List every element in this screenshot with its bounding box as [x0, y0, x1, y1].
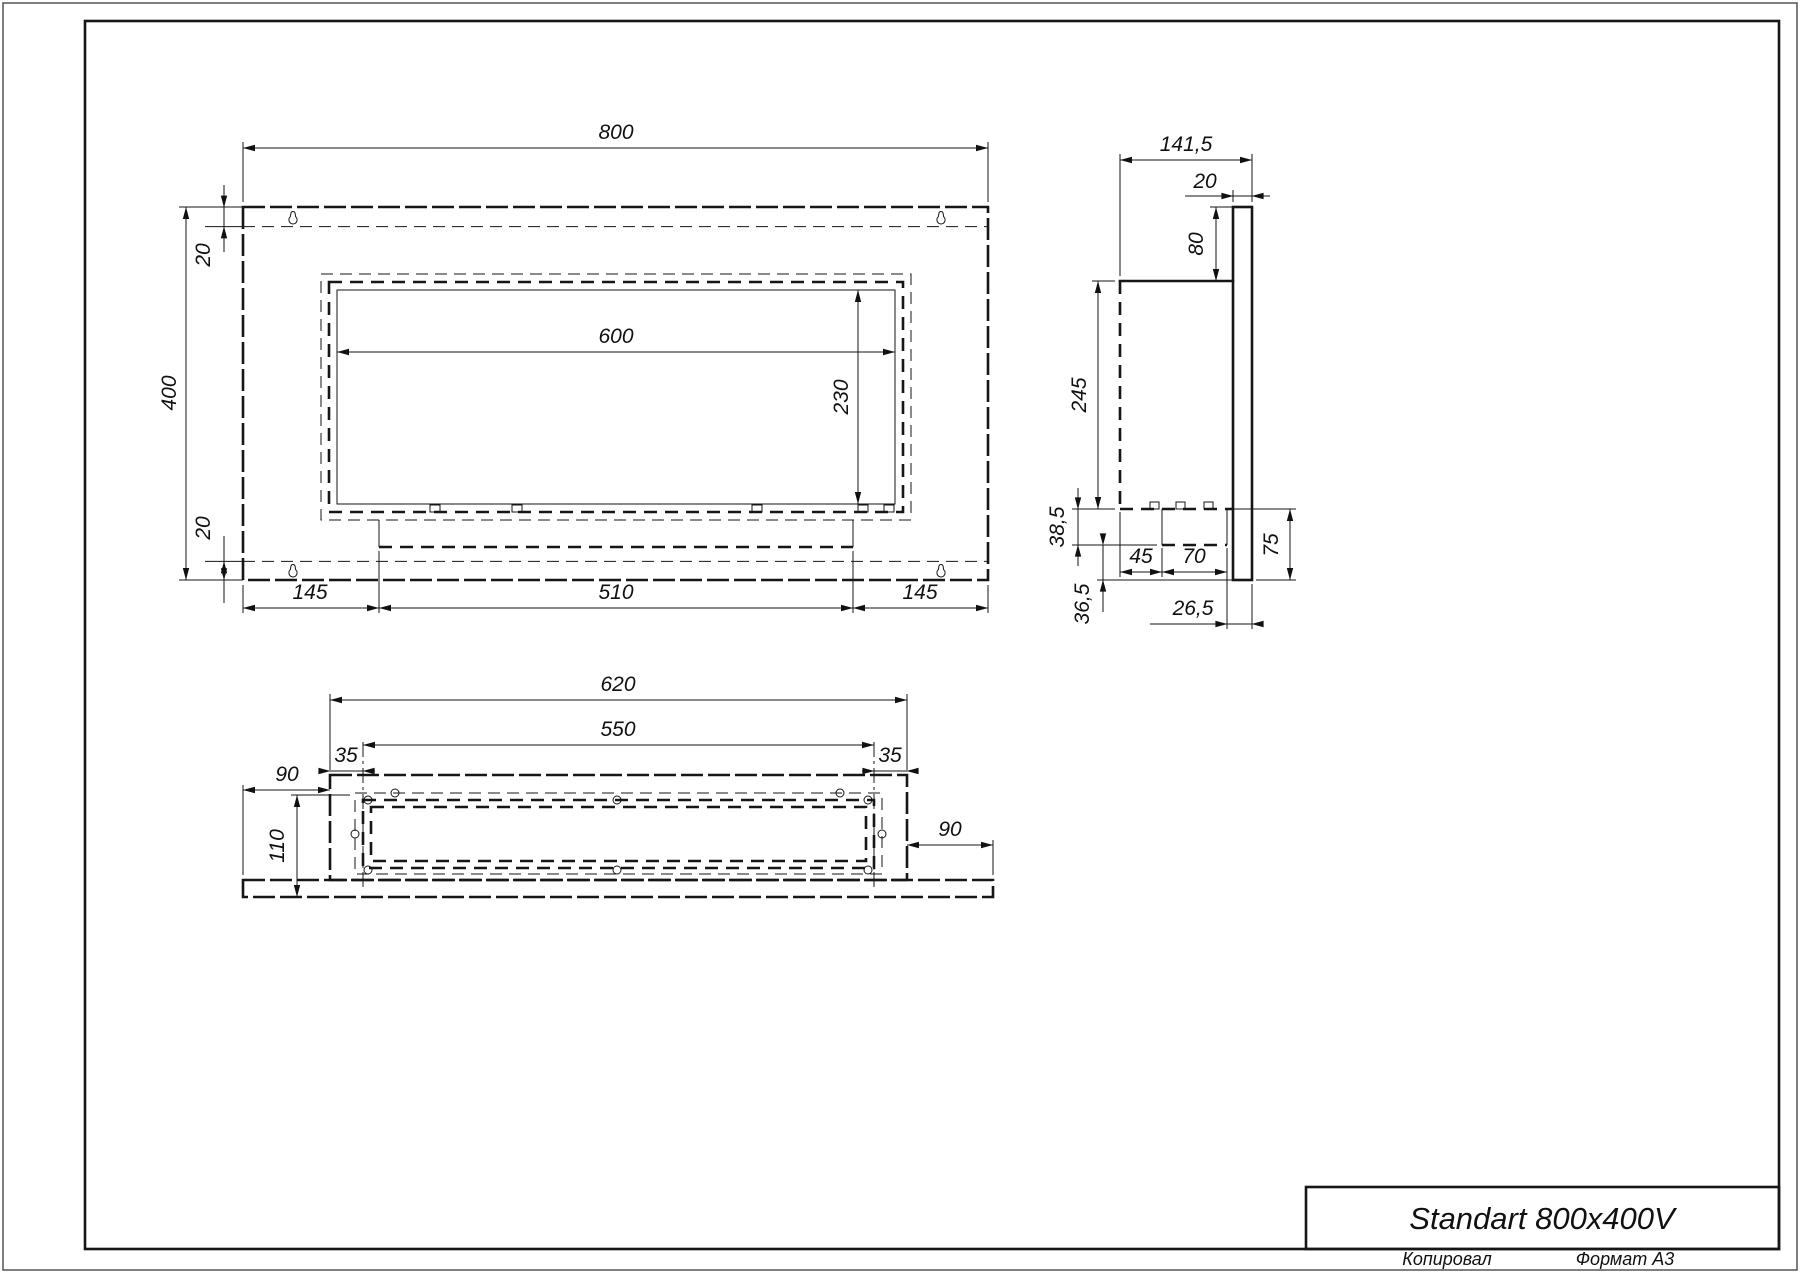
fuel-tray-front: [379, 520, 853, 547]
wall-panel-bottom: [243, 880, 993, 897]
opening: [337, 290, 895, 504]
technical-drawing: 800 400 20 20 600 230 145 510 145: [0, 0, 1800, 1273]
dim-bottom-right: 145: [902, 581, 937, 604]
dim-overall-width: 800: [598, 121, 633, 144]
dim-below-tray: 36,5: [1071, 583, 1094, 624]
dim-body-height: 245: [1068, 377, 1091, 413]
front-dimensions: 800 400 20 20 600 230 145 510 145: [158, 121, 988, 613]
dim-overall-depth: 141,5: [1160, 133, 1213, 156]
format-label: Формат А3: [1576, 1249, 1675, 1269]
extension-lines: [179, 142, 988, 613]
dim-tray-setback: 45: [1129, 545, 1153, 568]
dim-bottom-left: 145: [292, 581, 327, 604]
dim-tray-depth: 38,5: [1046, 506, 1069, 547]
title-block: Standart 800x400V Копировал Формат А3: [1306, 1187, 1779, 1269]
tray-wall-hidden: [363, 800, 874, 868]
dim-right-overhang: 90: [938, 818, 962, 841]
dim-hole-span: 550: [600, 718, 635, 741]
dim-top-offset: 80: [1185, 232, 1208, 256]
dim-depth: 110: [266, 829, 289, 863]
paper-edge: [3, 3, 1797, 1270]
back-panel: [1233, 207, 1252, 580]
opening-hidden-edge: [329, 282, 903, 512]
fuel-tray-side: [1162, 509, 1227, 545]
latch-tabs-side: [1150, 502, 1213, 509]
dim-panel-below-body: 75: [1260, 533, 1283, 557]
front-view: 800 400 20 20 600 230 145 510 145: [158, 121, 988, 613]
dim-left-inset: 35: [334, 744, 358, 767]
dim-tray-to-back: 26,5: [1172, 597, 1214, 620]
dim-overall-height: 400: [158, 375, 181, 410]
tray-inner-hidden: [371, 807, 866, 861]
dim-bottom-flange: 20: [192, 516, 215, 541]
dim-right-inset: 35: [878, 744, 902, 767]
dim-opening-height: 230: [830, 379, 853, 415]
dim-body-width: 620: [600, 673, 635, 696]
drawing-title: Standart 800x400V: [1409, 1201, 1678, 1236]
bottom-view: 620 550 35 35 90 90 110: [243, 673, 993, 897]
front-outline: [243, 207, 988, 580]
opening-outer-dashed: [321, 274, 911, 520]
side-view: 141,5 20 80 245 38,5 36,5 45 70 75 26,5: [1046, 133, 1296, 629]
dim-top-flange: 20: [192, 243, 215, 268]
dim-panel-thickness: 20: [1192, 170, 1217, 193]
drawing-sheet: 800 400 20 20 600 230 145 510 145: [0, 0, 1800, 1273]
body-bottom-outline: [330, 775, 907, 880]
dim-tray-width: 70: [1182, 545, 1206, 568]
dim-bottom-center: 510: [598, 581, 633, 604]
side-dimensions: 141,5 20 80 245 38,5 36,5 45 70 75 26,5: [1046, 133, 1296, 629]
drawing-frame: [85, 21, 1779, 1249]
copied-by-label: Копировал: [1402, 1249, 1492, 1269]
dim-opening-width: 600: [598, 325, 633, 348]
dim-left-overhang: 90: [275, 763, 299, 786]
